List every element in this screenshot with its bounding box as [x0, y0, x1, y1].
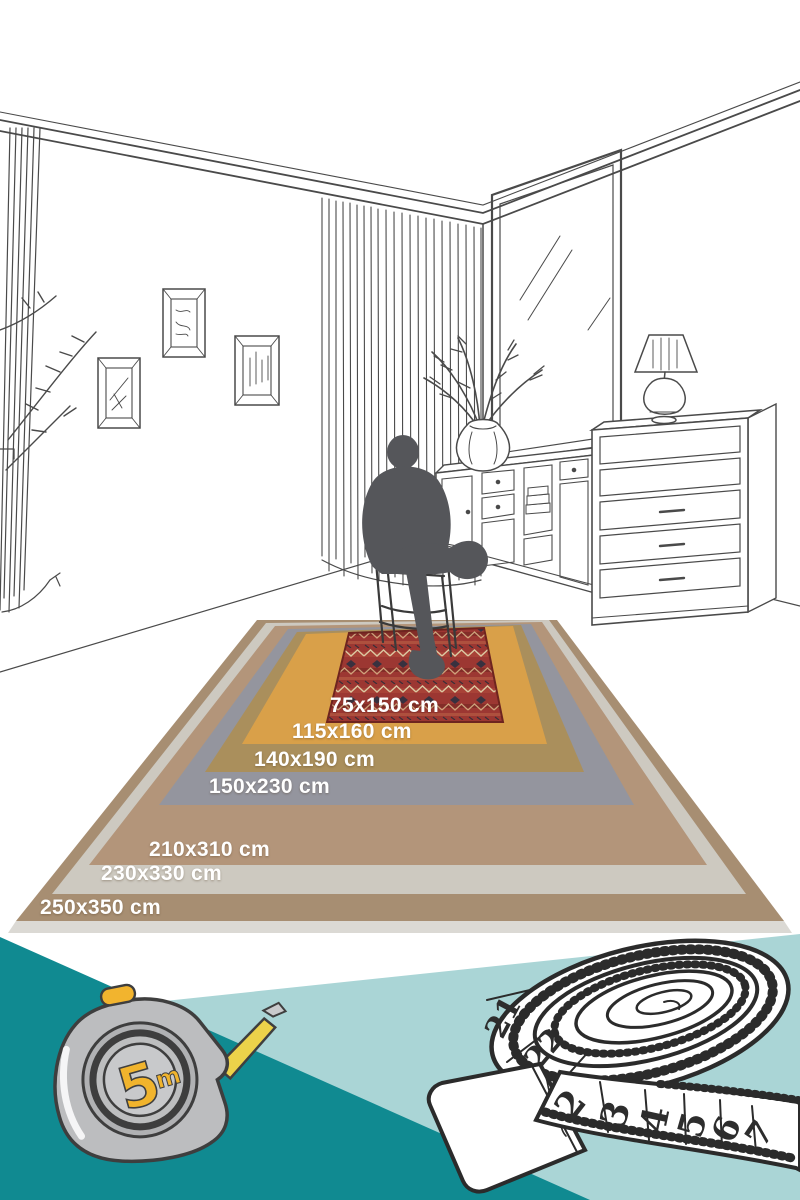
rug-stack [8, 620, 792, 933]
scene-drawing: 5 m 21 22 2 3 4 5 6 7 [0, 0, 800, 1200]
plant-branch [0, 292, 96, 470]
books [526, 486, 550, 514]
table-lamp [635, 335, 697, 424]
rug-size-label: 75x150 cm [330, 695, 439, 717]
picture-frame-2 [163, 289, 205, 357]
rug-size-label: 210x310 cm [149, 839, 270, 861]
crown-molding [0, 82, 800, 224]
rug-size-label: 115x160 cm [292, 721, 412, 743]
picture-frame-1 [98, 358, 140, 428]
rug-shadow [8, 921, 792, 933]
rug-size-label: 150x230 cm [209, 776, 330, 798]
rug-size-label: 250x350 cm [40, 897, 161, 919]
dresser [592, 404, 776, 625]
window-reflection-lines [520, 236, 610, 330]
lamp-base [644, 378, 685, 414]
lamp-shade [635, 335, 697, 372]
rug-size-label: 140x190 cm [254, 749, 375, 771]
rug-size-label: 230x330 cm [101, 863, 222, 885]
window [492, 150, 621, 462]
left-edge-curtain [0, 128, 60, 612]
vase [456, 420, 509, 472]
picture-frame-3 [235, 336, 279, 405]
rug-size-guide-infographic: 5 m 21 22 2 3 4 5 6 7 75x150 cm 115x160 … [0, 0, 800, 1200]
